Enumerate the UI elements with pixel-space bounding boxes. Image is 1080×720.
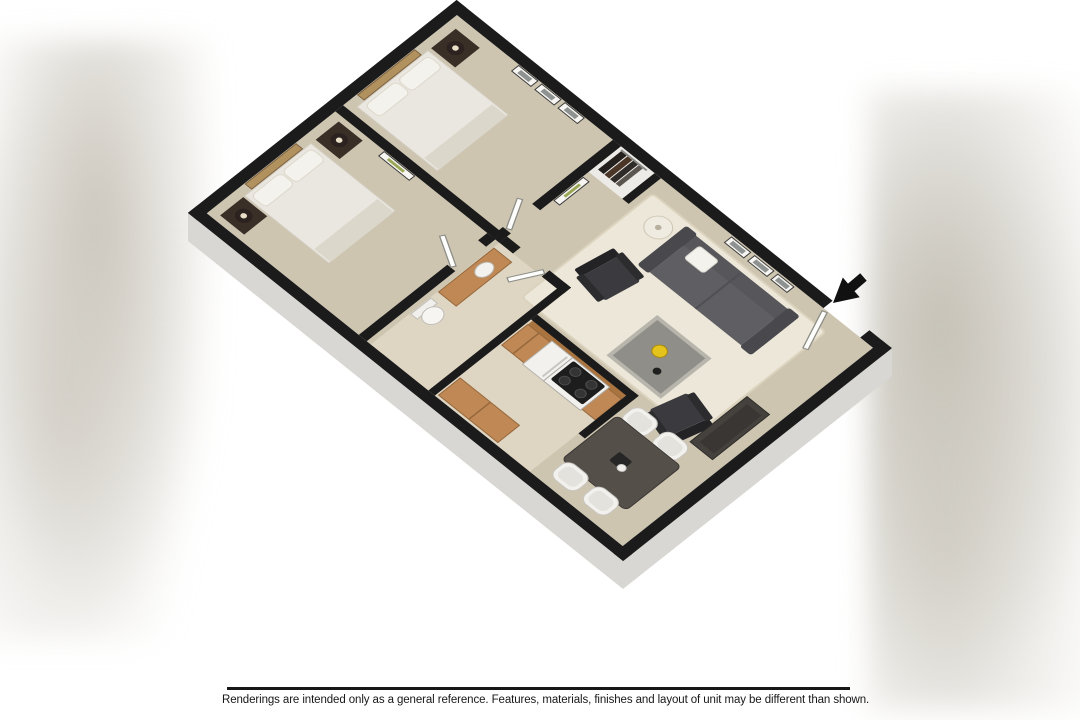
caption-rule xyxy=(227,687,850,690)
floorplan-iso-group xyxy=(188,0,892,561)
floorplan-page: Renderings are intended only as a genera… xyxy=(0,0,1080,720)
disclaimer-text: Renderings are intended only as a genera… xyxy=(222,694,822,706)
entry-arrow-icon xyxy=(833,273,867,303)
floorplan-canvas xyxy=(0,0,1080,720)
